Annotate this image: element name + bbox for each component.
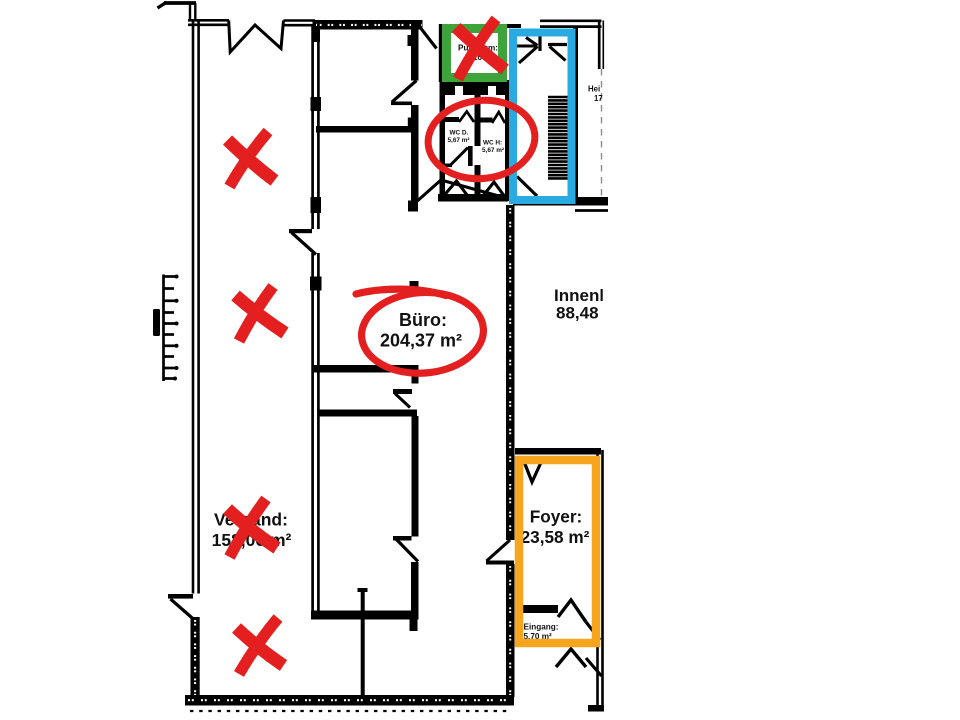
svg-text:5,67 m²: 5,67 m² xyxy=(448,137,470,144)
svg-text:Hei: Hei xyxy=(588,85,600,94)
svg-text:23,58 m²: 23,58 m² xyxy=(521,527,590,547)
svg-text:Foyer:: Foyer: xyxy=(530,507,583,527)
svg-text:Innenh: Innenh xyxy=(554,286,610,305)
svg-text:Büro:: Büro: xyxy=(399,310,447,330)
svg-text:88,48: 88,48 xyxy=(556,304,599,323)
svg-text:5,67 m²: 5,67 m² xyxy=(482,147,504,154)
svg-text:204,37 m²: 204,37 m² xyxy=(380,331,462,351)
svg-text:WC D.: WC D. xyxy=(450,130,469,137)
svg-text:Eingang:: Eingang: xyxy=(524,623,559,632)
svg-text:17: 17 xyxy=(594,94,603,103)
svg-text:WC H:: WC H: xyxy=(483,140,502,147)
